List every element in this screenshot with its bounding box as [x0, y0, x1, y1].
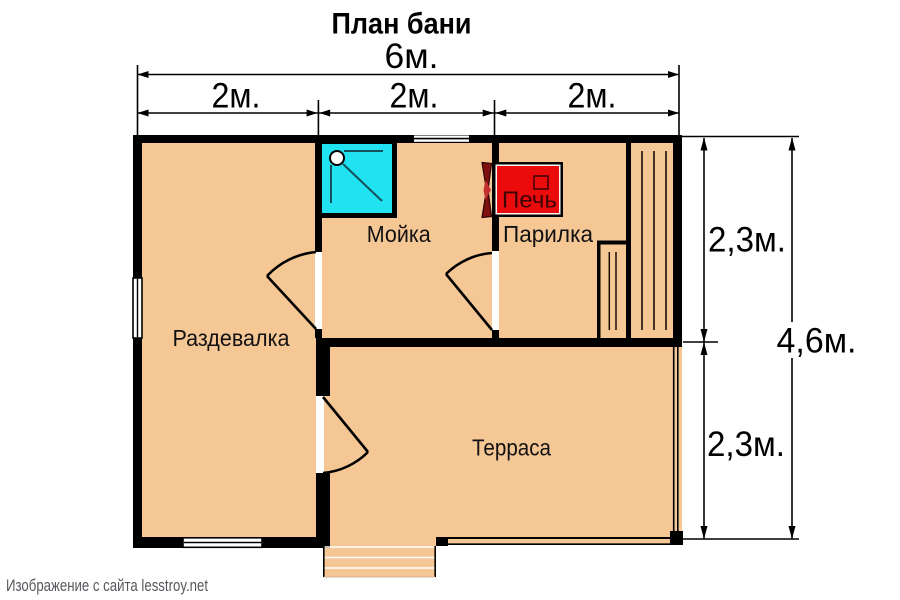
svg-text:2,3м.: 2,3м. [708, 221, 786, 260]
svg-text:2м.: 2м. [568, 77, 617, 116]
svg-text:Раздевалка: Раздевалка [173, 325, 290, 351]
svg-text:Печь: Печь [502, 187, 557, 213]
svg-text:6м.: 6м. [385, 37, 439, 76]
svg-text:Терраса: Терраса [472, 435, 551, 461]
svg-text:Мойка: Мойка [367, 221, 431, 247]
svg-text:Парилка: Парилка [503, 221, 593, 247]
svg-text:Изображение с сайта lesstroy.n: Изображение с сайта lesstroy.net [6, 577, 208, 595]
svg-text:2м.: 2м. [212, 77, 261, 116]
svg-text:2,3м.: 2,3м. [707, 425, 785, 464]
svg-text:4,6м.: 4,6м. [777, 322, 857, 361]
svg-text:2м.: 2м. [390, 77, 439, 116]
svg-text:План бани: План бани [332, 8, 472, 41]
